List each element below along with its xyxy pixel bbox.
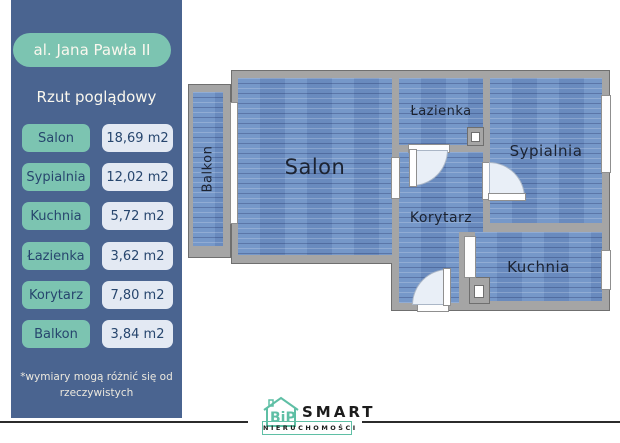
area-row-balkon: Balkon 3,84 m2	[11, 320, 182, 348]
room-name-badge: Balkon	[22, 320, 90, 348]
area-row-salon: Salon 18,69 m2	[11, 124, 182, 152]
room-name-badge: Łazienka	[22, 242, 90, 270]
exterior-notch	[231, 263, 392, 311]
room-name-badge: Salon	[22, 124, 90, 152]
area-row-sypialnia: Sypialnia 12,02 m2	[11, 163, 182, 191]
room-name-badge: Sypialnia	[22, 163, 90, 191]
room-label-salon: Salon	[285, 155, 346, 179]
sypialnia-door-leaf	[488, 193, 526, 201]
area-row-lazienka: Łazienka 3,62 m2	[11, 242, 182, 270]
room-label-kuchnia: Kuchnia	[507, 258, 570, 276]
agency-logo: BiP SMART NIERUCHOMOŚCI	[260, 394, 360, 440]
sidebar: al. Jana Pawła II Rzut poglądowy Salon 1…	[11, 0, 182, 418]
area-row-korytarz: Korytarz 7,80 m2	[11, 281, 182, 309]
kuchnia-door-opening	[464, 236, 476, 278]
room-name-badge: Korytarz	[22, 281, 90, 309]
shaft-lazienka-inner	[471, 132, 480, 142]
footer-rule-left	[0, 421, 248, 423]
kuchnia-window	[601, 250, 611, 290]
room-kuchnia: Kuchnia	[475, 232, 602, 301]
room-area-badge: 18,69 m2	[102, 124, 173, 152]
room-sypialnia: Sypialnia	[490, 78, 602, 223]
footer-rule-right	[362, 421, 620, 423]
room-area-badge: 12,02 m2	[102, 163, 173, 191]
disclaimer-text: *wymiary mogą różnić się od rzeczywistyc…	[11, 370, 182, 402]
area-row-kuchnia: Kuchnia 5,72 m2	[11, 202, 182, 230]
room-label-sypialnia: Sypialnia	[510, 142, 583, 160]
room-name-badge: Kuchnia	[22, 202, 90, 230]
lazienka-door-leaf	[409, 149, 417, 187]
salon-korytarz-opening	[391, 157, 400, 199]
room-label-korytarz: Korytarz	[410, 210, 472, 226]
plan-subtitle: Rzut poglądowy	[11, 88, 182, 106]
room-label-lazienka: Łazienka	[410, 104, 471, 119]
room-salon: Salon	[238, 78, 392, 255]
room-area-badge: 3,62 m2	[102, 242, 173, 270]
floorplan-page: al. Jana Pawła II Rzut poglądowy Salon 1…	[0, 0, 620, 443]
balcony-window	[230, 102, 238, 224]
entrance-door-leaf	[443, 268, 451, 306]
room-area-badge: 3,84 m2	[102, 320, 173, 348]
room-area-badge: 7,80 m2	[102, 281, 173, 309]
room-label-balkon: Balkon	[201, 146, 216, 193]
logo-subtitle: NIERUCHOMOŚCI	[262, 421, 352, 435]
room-balkon: Balkon	[193, 92, 223, 246]
address-text: al. Jana Pawła II	[34, 41, 151, 59]
shaft-kuchnia-inner	[474, 285, 484, 298]
address-pill: al. Jana Pawła II	[13, 33, 171, 67]
sypialnia-window	[601, 95, 611, 173]
room-area-badge: 5,72 m2	[102, 202, 173, 230]
logo-name: SMART	[302, 403, 375, 421]
